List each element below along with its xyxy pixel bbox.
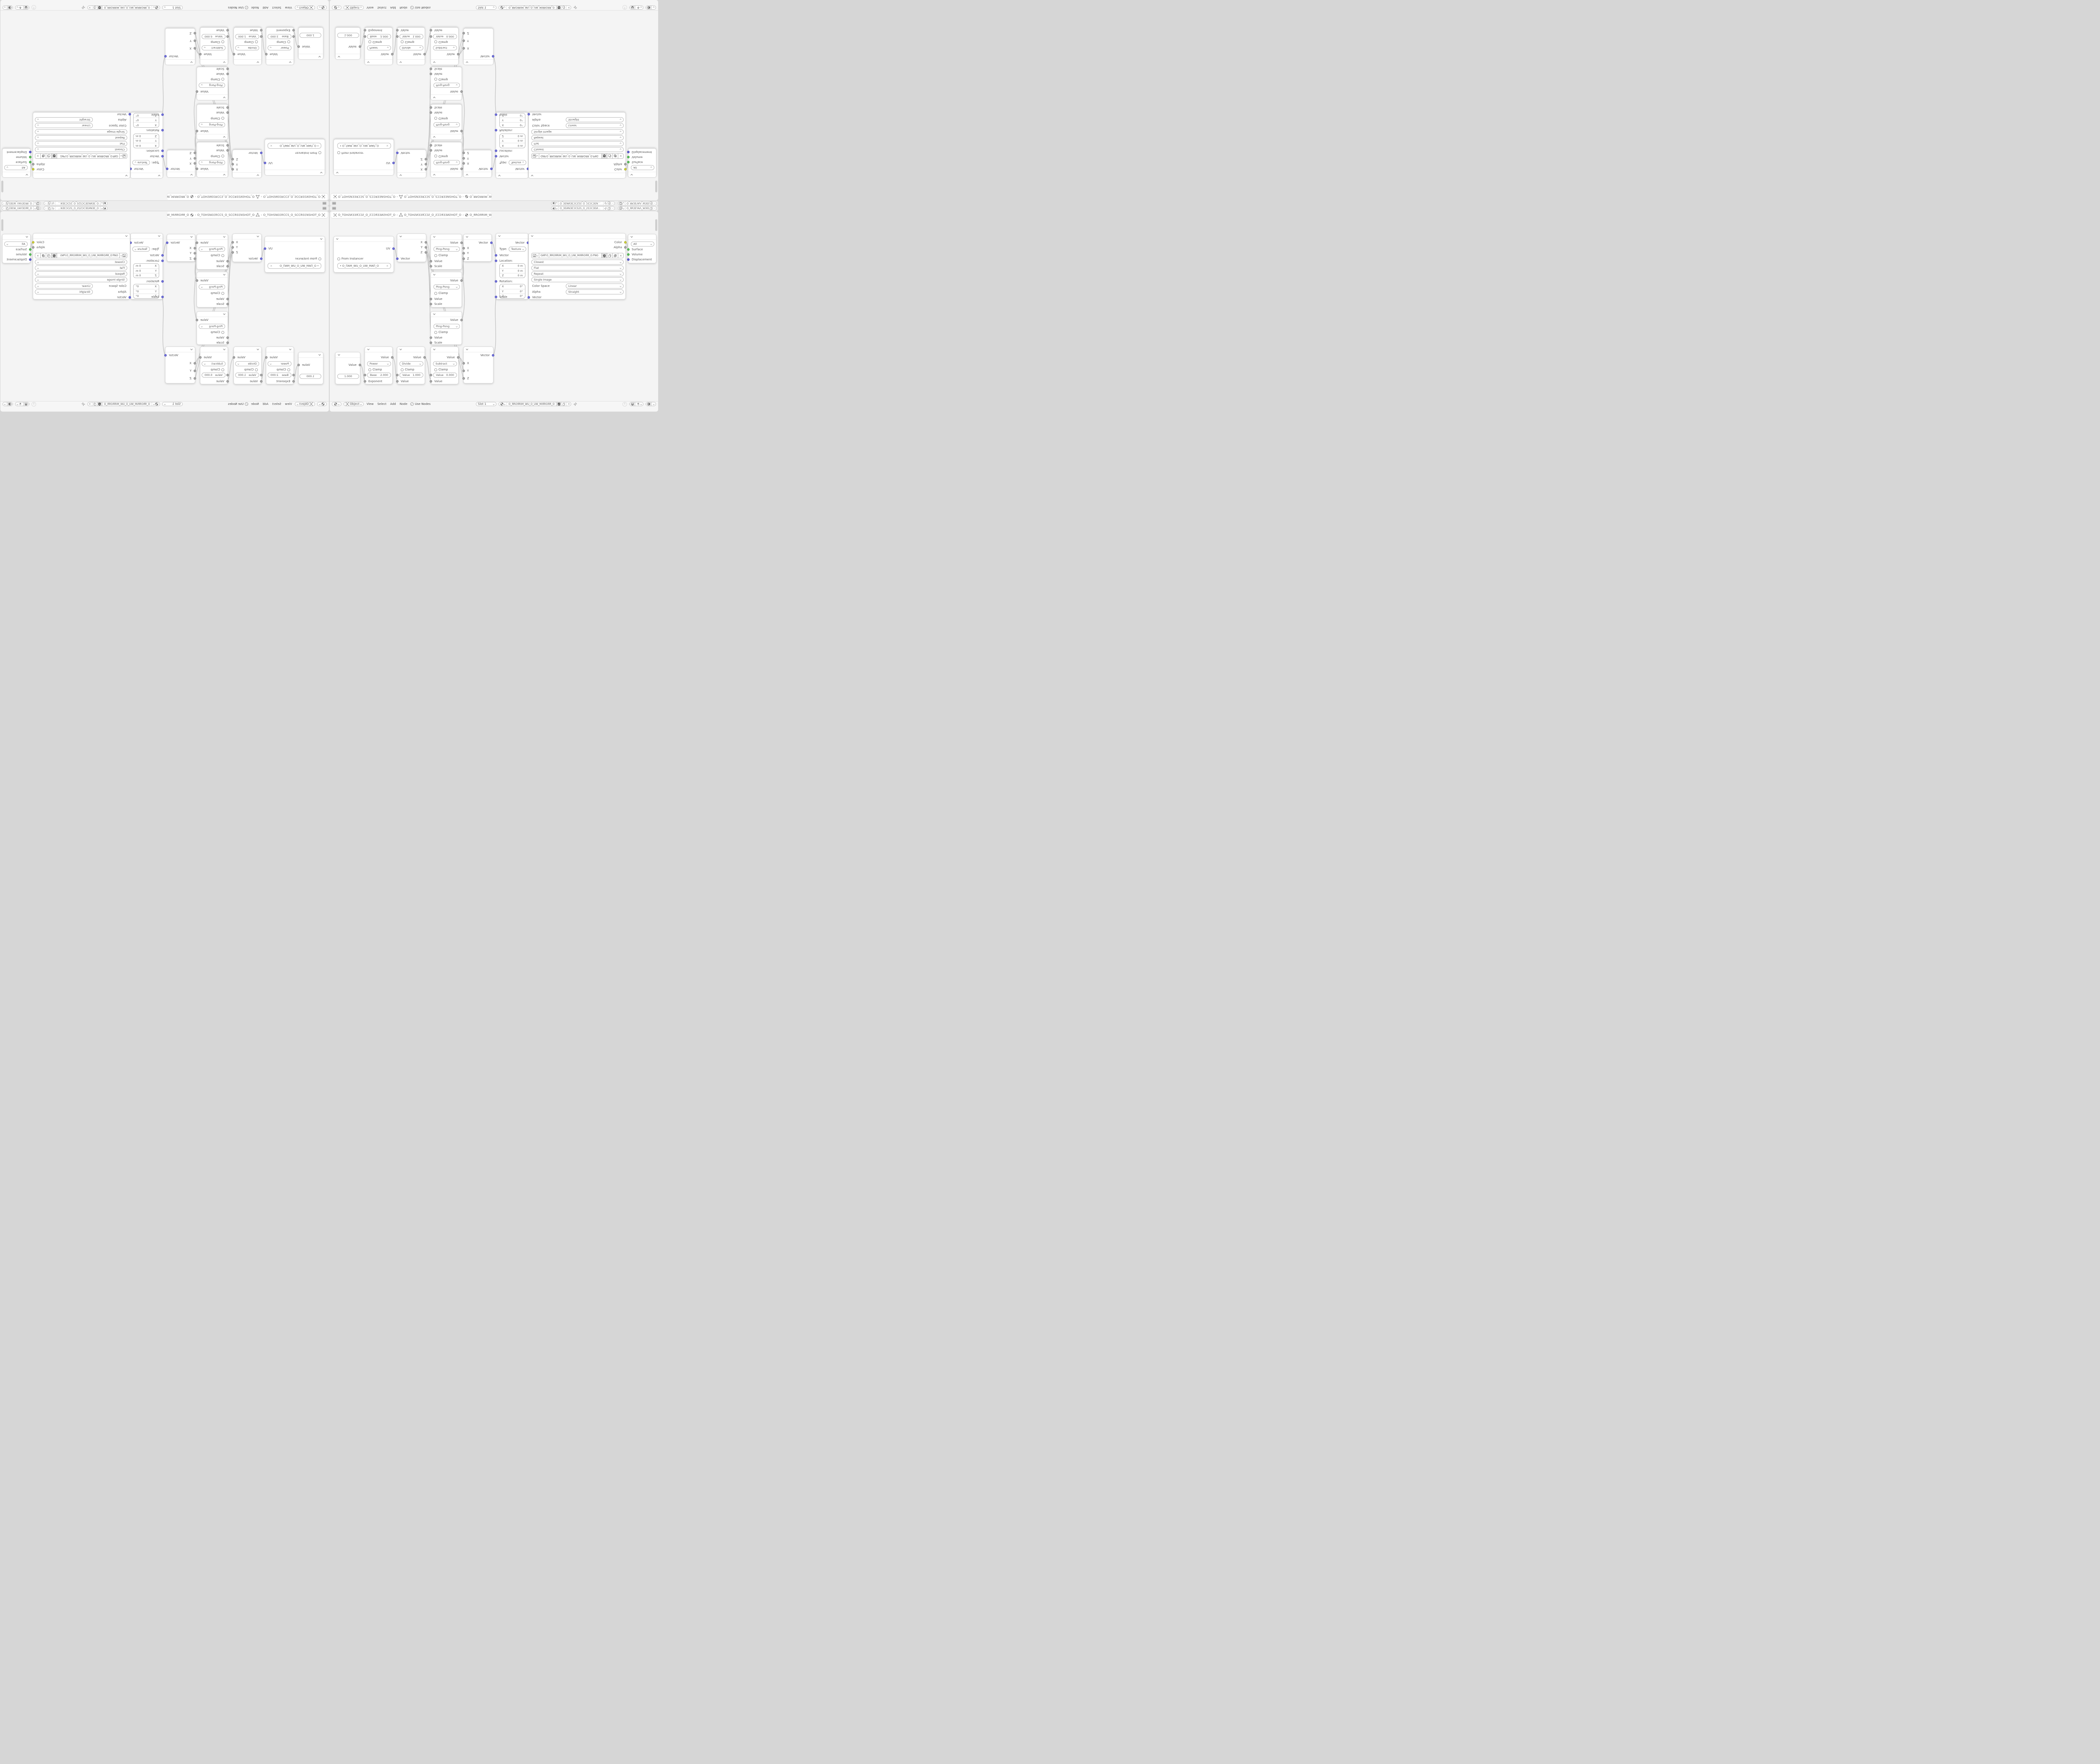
pin-icon[interactable] [603, 202, 607, 205]
vector-input-socket[interactable] [396, 257, 399, 260]
uv-output-socket[interactable] [264, 162, 266, 164]
y-input-socket[interactable] [194, 157, 196, 160]
clamp-checkbox[interactable] [221, 41, 224, 44]
value-output-socket[interactable] [460, 130, 463, 132]
vector-output-socket[interactable] [166, 241, 168, 244]
up-arrow-ghost-button[interactable]: ↑ [31, 402, 36, 407]
breadcrumb-object[interactable]: O_TOHƧИЗЗЯƆƆƧ_O_ƧƆƆЯЗЗИƧHOT_O [197, 195, 255, 199]
collapse-chevron-icon[interactable] [158, 234, 160, 237]
collapse-chevron-icon[interactable] [630, 235, 633, 238]
z-output-socket[interactable] [425, 158, 427, 160]
collapse-chevron-icon[interactable] [367, 61, 370, 64]
x-input-socket[interactable] [462, 362, 465, 365]
scale-input-socket[interactable] [226, 303, 229, 305]
breadcrumb-object[interactable]: O_TOHƧИЗЗЯƆƆƧ_O_ƧƆƆЯЗЗИƧHOT_O [404, 195, 461, 199]
value-output-socket[interactable] [196, 319, 198, 321]
collapse-chevron-icon[interactable] [257, 174, 259, 177]
vector-input-socket[interactable] [161, 155, 164, 157]
value-input-socket[interactable] [430, 298, 432, 300]
uv-map-node[interactable]: UV From Instancer • O_ПAM_WU_O_UW_MAП_O … [333, 236, 394, 273]
math-node-ping-pong-2[interactable]: Value Ping-Pong Clamp Value Scale [430, 104, 462, 140]
editor-type-button[interactable] [332, 5, 341, 10]
value-output-socket[interactable] [196, 90, 198, 93]
pin-icon[interactable] [52, 207, 55, 210]
x-output-socket[interactable] [425, 241, 427, 244]
collapse-chevron-icon[interactable] [190, 61, 193, 64]
overlays-icon[interactable] [646, 6, 651, 9]
base-field[interactable]: Base2.000 [268, 373, 291, 378]
overlays-dropdown[interactable] [651, 402, 656, 406]
unlink-x-icon[interactable]: × [88, 402, 92, 406]
output-target-dropdown[interactable]: All [631, 241, 654, 247]
pack-icon[interactable] [40, 253, 46, 258]
collapse-chevron-icon[interactable] [338, 56, 340, 58]
projection-dropdown[interactable]: Flat [531, 141, 624, 146]
breadcrumb-material[interactable]: O_ЯROЯRIM_WU_O_UW_MIЯROЯR_O [470, 213, 491, 217]
collapse-chevron-icon[interactable] [531, 234, 533, 237]
breadcrumb-material[interactable]: O_ЯROЯRIM_WU_O_UW_MIЯROЯR_O [470, 195, 491, 199]
menu-hamburger-icon[interactable] [332, 202, 336, 205]
magnet-icon[interactable] [630, 6, 635, 9]
value-output-socket[interactable] [196, 130, 198, 132]
operation-dropdown[interactable]: Power [367, 45, 391, 50]
collapse-chevron-icon[interactable] [289, 61, 291, 64]
value-field[interactable]: Value1.000 [399, 34, 423, 39]
use-nodes-checkbox[interactable]: ✓ Use Nodes [228, 402, 248, 406]
separate-xyz-node[interactable]: X Y Z Vector [397, 150, 426, 178]
base-input-socket[interactable] [292, 374, 295, 376]
vector-output-socket[interactable] [492, 354, 494, 357]
value-output-socket[interactable] [460, 319, 463, 321]
copy-icon[interactable] [48, 202, 52, 205]
material-browse-icon[interactable] [499, 402, 507, 406]
shader-context-dropdown[interactable]: Object [344, 5, 364, 10]
collapse-chevron-icon[interactable] [223, 235, 226, 238]
value-output-socket[interactable] [460, 241, 463, 244]
value-output-socket[interactable] [196, 168, 198, 170]
copy-icon[interactable] [649, 207, 653, 210]
scale-input-socket[interactable] [226, 341, 229, 344]
projection-dropdown[interactable]: Flat [531, 265, 624, 270]
x-input-socket[interactable] [194, 247, 196, 249]
alpha-mode-dropdown[interactable]: Straight [566, 289, 624, 294]
collapse-chevron-icon[interactable] [318, 56, 321, 58]
image-texture-node[interactable]: Color Alpha GИP.O_ЯROЯRIM_WU_O_UW_MIЯROЯ… [33, 233, 130, 299]
breadcrumb-scene[interactable]: O_TOHƧИЗЗЯƆƆƧ_O_ƧƆƆЯЗЗИƧHOT_O [338, 195, 395, 199]
displacement-input-socket[interactable] [29, 258, 31, 261]
id-selector-b[interactable]: O_ЯRЗEYAΛ_WЗEIW_O_WIЗEW_ΛAYЗERЯ_O × [2, 206, 41, 210]
clamp-checkbox[interactable] [434, 155, 437, 158]
base-input-socket[interactable] [364, 35, 366, 38]
uv-output-socket[interactable] [264, 247, 266, 250]
material-browse-icon[interactable] [152, 6, 160, 9]
combine-xyz-node-bottom[interactable]: Vector X Y Z [165, 346, 195, 383]
math-node-ping-pong-3[interactable]: Value Ping-Pong Clamp Value Scale [430, 67, 462, 100]
output-target-dropdown[interactable]: All [631, 165, 654, 170]
base-input-socket[interactable] [292, 35, 295, 38]
source-dropdown[interactable]: Single Image [35, 129, 127, 134]
clamp-checkbox[interactable] [434, 254, 437, 257]
unlink-x-icon[interactable]: × [44, 202, 48, 205]
id-selector-a[interactable]: O_ЗEИNЗEƆCS2S_O_2SƆCЗEИ… × [551, 201, 615, 205]
collapse-chevron-icon[interactable] [223, 348, 226, 350]
breadcrumb-scene[interactable]: O_TOHƧИЗЗЯƆƆƧ_O_ƧƆƆЯЗЗИƧHOT_O [263, 195, 320, 199]
clamp-checkbox[interactable] [368, 368, 371, 371]
material-output-node[interactable]: All Surface Volume Displacement [2, 148, 31, 178]
overlays-icon[interactable] [7, 6, 13, 9]
z-input-socket[interactable] [194, 32, 196, 34]
up-arrow-ghost-button[interactable]: ↑ [622, 5, 627, 10]
value-output-socket[interactable] [359, 45, 361, 48]
value-input-socket[interactable] [226, 111, 229, 114]
math-node-subtract[interactable]: Value Subtract Clamp Value0.000 Value [430, 27, 459, 65]
collapse-chevron-icon[interactable] [498, 175, 501, 177]
snap-type-dropdown[interactable] [16, 402, 24, 406]
value-output-socket[interactable] [460, 90, 463, 93]
value-input-socket[interactable] [226, 73, 229, 75]
mapping-type-dropdown[interactable]: Texture [509, 247, 526, 252]
color-space-dropdown[interactable]: Linear [566, 283, 624, 289]
math-node-subtract[interactable]: Value Subtract Clamp Value0.000 Value [200, 27, 228, 65]
alpha-output-socket[interactable] [624, 163, 627, 165]
value2-input-socket[interactable] [260, 29, 262, 31]
value-output-socket[interactable] [423, 53, 426, 55]
material-name[interactable]: O_ЯROЯRIM_WU_O_UW_MIЯROЯR_O [102, 6, 152, 9]
pin-icon[interactable] [603, 207, 607, 210]
operation-dropdown[interactable]: Subtract [433, 45, 457, 50]
vector-output-socket[interactable] [492, 55, 494, 58]
collapse-chevron-icon[interactable] [223, 61, 226, 64]
y-output-socket[interactable] [425, 246, 427, 249]
menu-view[interactable]: View [284, 6, 293, 9]
unlink-x-icon[interactable]: × [88, 6, 92, 9]
uv-map-node[interactable]: UV From Instancer • O_ПAM_WU_O_UW_MAП_O … [333, 139, 394, 176]
value2-input-socket[interactable] [226, 29, 229, 31]
value-field[interactable]: 1.000 [337, 374, 359, 379]
math-node-power[interactable]: Value Power Clamp Base2.000 Exponent [365, 346, 393, 384]
z-input-socket[interactable] [194, 377, 196, 380]
unlink-x-icon[interactable]: × [618, 253, 624, 258]
math-node-ping-pong-3[interactable]: Value Ping-Pong Clamp Value Scale [197, 311, 228, 345]
operation-dropdown[interactable]: Ping-Pong [199, 160, 225, 165]
id-selector-b[interactable]: O_ЯRЗEYAΛ_WЗEIW_O_WIЗEW_ΛAYЗERЯ_O × [2, 201, 41, 205]
alpha-mode-dropdown[interactable]: Straight [35, 289, 93, 294]
image-filename[interactable]: GИP.O_ЯROЯRIM_WU_O_UW_MIЯROЯR_O.PNG [57, 153, 119, 159]
unlink-x-icon[interactable]: × [2, 207, 6, 210]
clamp-checkbox[interactable] [221, 368, 224, 371]
operation-dropdown[interactable]: Ping-Pong [433, 83, 460, 88]
y-input-socket[interactable] [194, 252, 196, 255]
clamp-checkbox[interactable] [221, 155, 224, 158]
value-field[interactable]: Value1.000 [235, 34, 259, 39]
rotation-input-socket[interactable] [161, 129, 164, 131]
volume-input-socket[interactable] [29, 253, 31, 256]
volume-input-socket[interactable] [627, 156, 630, 158]
menu-node[interactable]: Node [250, 6, 260, 9]
scale-input-socket[interactable] [495, 296, 497, 298]
unlink-x-icon[interactable]: × [566, 6, 571, 9]
color-output-socket[interactable] [32, 168, 34, 171]
material-selector[interactable]: O_ЯROЯRIM_WU_O_UW_MIЯROЯR_O × [499, 402, 572, 406]
value-field[interactable]: Value1.000 [399, 373, 423, 378]
scale-input-socket[interactable] [226, 265, 229, 268]
unlink-x-icon[interactable]: × [566, 402, 571, 406]
from-instancer-checkbox[interactable] [337, 152, 340, 155]
pack-icon[interactable] [613, 153, 618, 159]
value-output-socket[interactable] [297, 364, 300, 366]
math-node-divide[interactable]: Value Divide Clamp Value1.000 Value [397, 27, 425, 65]
value-node[interactable]: Value 1.000 [335, 27, 360, 60]
material-name[interactable]: O_ЯROЯRIM_WU_O_UW_MIЯROЯR_O [507, 6, 556, 9]
menu-node[interactable]: Node [399, 6, 408, 9]
collapse-chevron-icon[interactable] [223, 97, 226, 99]
value-input-socket[interactable] [430, 336, 432, 339]
value-output-socket[interactable] [457, 356, 459, 359]
x-input-socket[interactable] [462, 247, 465, 249]
collapse-chevron-icon[interactable] [158, 175, 160, 177]
pin-icon[interactable] [81, 402, 85, 406]
id-selector-a-value[interactable]: O_ЗEИNЗEƆCS2S_O_2SƆCЗEИ… [55, 207, 100, 210]
extension-dropdown[interactable]: Repeat [531, 135, 624, 140]
interpolation-dropdown[interactable]: Closest [531, 147, 624, 152]
clamp-checkbox[interactable] [434, 292, 437, 295]
operation-dropdown[interactable]: Subtract [202, 45, 226, 50]
collapse-chevron-icon[interactable] [466, 235, 468, 238]
id-selector-a[interactable]: O_ЗEИNЗEƆCS2S_O_2SƆCЗEИ… × [44, 201, 108, 205]
location-fields[interactable]: X0 m Y0 m Z0 m [133, 263, 159, 278]
vector-output-socket[interactable] [164, 55, 167, 58]
uv-output-socket[interactable] [392, 247, 395, 250]
value-field[interactable]: 1.000 [337, 33, 359, 38]
image-datablock-selector[interactable]: GИP.O_ЯROЯRIM_WU_O_UW_MIЯROЯR_O.PNG × [531, 253, 624, 258]
x-input-socket[interactable] [194, 162, 196, 165]
math-node-power[interactable]: Value Power Clamp Base2.000 Exponent [365, 27, 393, 65]
image-browse-icon[interactable] [119, 153, 127, 159]
id-selector-a-value[interactable]: O_ЗEИNЗEƆCS2S_O_2SƆCЗEИ… [559, 202, 603, 205]
snap-controls[interactable] [15, 402, 29, 406]
alpha-mode-dropdown[interactable]: Straight [35, 117, 93, 122]
combine-xyz-node-bottom[interactable]: Vector X Y Z [165, 28, 195, 65]
extension-dropdown[interactable]: Repeat [35, 135, 127, 140]
y-output-socket[interactable] [231, 246, 234, 249]
clear-x-icon[interactable]: × [386, 144, 388, 147]
value-output-socket[interactable] [359, 364, 361, 366]
clear-x-icon[interactable]: × [270, 144, 272, 147]
output-target-dropdown[interactable]: All [4, 165, 28, 170]
id-selector-a-value[interactable]: O_ЗEИNЗEƆCS2S_O_2SƆCЗEИ… [55, 202, 100, 205]
unlink-x-icon[interactable]: × [611, 207, 614, 210]
collapse-chevron-icon[interactable] [125, 175, 128, 177]
volume-input-socket[interactable] [29, 156, 31, 158]
scale-input-socket[interactable] [430, 144, 432, 147]
breadcrumb-material[interactable]: O_ЯROЯRIM_WU_O_UW_MIЯROЯR_O [167, 195, 189, 199]
value-field[interactable]: Value0.000 [202, 373, 226, 378]
value1-input-socket[interactable] [430, 35, 432, 38]
operation-dropdown[interactable]: Ping-Pong [199, 247, 225, 252]
collapse-chevron-icon[interactable] [289, 348, 291, 350]
snap-controls[interactable] [15, 5, 29, 10]
displacement-input-socket[interactable] [627, 258, 630, 261]
operation-dropdown[interactable]: Divide [235, 361, 259, 366]
value-input-socket[interactable] [430, 111, 432, 114]
math-node-power[interactable]: Value Power Clamp Base2.000 Exponent [266, 27, 294, 65]
x-input-socket[interactable] [194, 362, 196, 365]
collapse-chevron-icon[interactable] [433, 312, 436, 315]
collapse-chevron-icon[interactable] [433, 174, 436, 176]
editor-type-button[interactable] [317, 402, 327, 406]
clamp-checkbox[interactable] [221, 254, 224, 257]
operation-dropdown[interactable]: Power [367, 361, 391, 366]
combine-xyz-node-bottom[interactable]: Vector X Y Z [463, 346, 493, 383]
math-node-ping-pong-3[interactable]: Value Ping-Pong Clamp Value Scale [197, 67, 228, 100]
value-field[interactable]: Value0.000 [433, 34, 457, 39]
operation-dropdown[interactable]: Divide [399, 45, 423, 50]
menu-node[interactable]: Node [399, 402, 408, 406]
clamp-checkbox[interactable] [368, 41, 371, 44]
up-arrow-ghost-button[interactable]: ↑ [31, 5, 36, 10]
alpha-mode-dropdown[interactable]: Straight [566, 117, 624, 122]
up-arrow-ghost-button[interactable]: ↑ [622, 402, 627, 407]
overlays-controls[interactable] [3, 5, 13, 10]
id-selector-b[interactable]: O_ЯRЗEYAΛ_WЗEIW_O_WIЗEW_ΛAYЗERЯ_O × [618, 201, 657, 205]
vector-input-socket[interactable] [528, 113, 530, 115]
menu-add[interactable]: Add [389, 6, 397, 9]
clamp-checkbox[interactable] [221, 331, 224, 334]
copy-icon[interactable] [649, 202, 653, 205]
use-nodes-checkbox[interactable]: ✓ Use Nodes [228, 6, 248, 9]
operation-dropdown[interactable]: Divide [399, 361, 423, 366]
location-fields[interactable]: X0 m Y0 m Z0 m [133, 134, 159, 148]
value-output-socket[interactable] [265, 53, 268, 55]
pack-icon[interactable] [613, 253, 618, 258]
clamp-checkbox[interactable] [434, 117, 437, 120]
collapse-chevron-icon[interactable] [466, 61, 468, 64]
clamp-checkbox[interactable] [401, 368, 404, 371]
clamp-checkbox[interactable] [434, 41, 437, 44]
from-instancer-checkbox[interactable] [337, 257, 340, 260]
collapse-chevron-icon[interactable] [399, 61, 402, 64]
value-input-socket[interactable] [226, 336, 229, 339]
y-input-socket[interactable] [194, 370, 196, 372]
color-space-dropdown[interactable]: Linear [35, 283, 93, 289]
image-browse-icon[interactable] [531, 153, 539, 159]
operation-dropdown[interactable]: Ping-Pong [433, 284, 460, 289]
vector-input-socket[interactable] [129, 296, 131, 299]
magnet-icon[interactable] [630, 402, 635, 406]
source-dropdown[interactable]: Single Image [35, 277, 127, 282]
value-output-socket[interactable] [196, 241, 198, 244]
collapse-chevron-icon[interactable] [466, 174, 468, 176]
editor-type-button[interactable] [332, 402, 341, 406]
collapse-chevron-icon[interactable] [338, 353, 340, 356]
mapping-node[interactable]: Vector Type: Texture Vector Location: X0… [130, 233, 163, 299]
value2-input-socket[interactable] [396, 380, 399, 383]
operation-dropdown[interactable]: Power [268, 45, 291, 50]
vector-input-socket[interactable] [495, 155, 497, 157]
exponent-input-socket[interactable] [364, 380, 366, 383]
location-input-socket[interactable] [161, 150, 164, 152]
rotation-input-socket[interactable] [161, 280, 164, 283]
collapse-chevron-icon[interactable] [223, 174, 226, 176]
z-input-socket[interactable] [462, 32, 465, 34]
node-header[interactable] [334, 170, 394, 175]
snap-type-dropdown[interactable] [635, 402, 643, 406]
vector-input-socket[interactable] [396, 152, 399, 154]
snap-controls[interactable] [629, 402, 643, 406]
collapse-chevron-icon[interactable] [190, 174, 193, 176]
breadcrumb-object[interactable]: O_TOHƧИЗЗЯƆƆƧ_O_ƧƆƆЯЗЗИƧHOT_O [404, 213, 461, 217]
value1-input-socket[interactable] [226, 35, 229, 38]
shader-context-dropdown[interactable]: Object [295, 5, 315, 10]
unlink-x-icon[interactable]: × [618, 153, 624, 159]
value-output-socket[interactable] [265, 356, 268, 359]
x-output-socket[interactable] [425, 168, 427, 171]
exponent-input-socket[interactable] [292, 380, 295, 383]
z-output-socket[interactable] [425, 251, 427, 254]
math-node-ping-pong-1[interactable]: Value Ping-Pong Clamp Value Scale [197, 234, 228, 270]
operation-dropdown[interactable]: Subtract [433, 361, 457, 366]
separate-xyz-node[interactable]: X Y Z Vector [232, 150, 262, 178]
value-field[interactable]: Value0.000 [202, 34, 226, 39]
value-input-socket[interactable] [430, 73, 432, 75]
operation-dropdown[interactable]: Ping-Pong [199, 83, 225, 88]
source-dropdown[interactable]: Single Image [531, 129, 624, 134]
math-node-subtract[interactable]: Value Subtract Clamp Value0.000 Value [200, 346, 228, 384]
operation-dropdown[interactable]: Subtract [202, 361, 226, 366]
menu-add[interactable]: Add [262, 6, 269, 9]
scale-input-socket[interactable] [226, 68, 229, 70]
image-texture-node[interactable]: Color Alpha GИP.O_ЯROЯRIM_WU_O_UW_MIЯROЯ… [528, 233, 626, 299]
collapse-chevron-icon[interactable] [433, 97, 436, 99]
operation-dropdown[interactable]: Ping-Pong [433, 247, 460, 252]
collapse-chevron-icon[interactable] [223, 312, 226, 315]
operation-dropdown[interactable]: Ping-Pong [199, 284, 225, 289]
unlink-x-icon[interactable]: × [35, 153, 40, 159]
menu-hamburger-icon[interactable] [332, 207, 336, 210]
interpolation-dropdown[interactable]: Closest [35, 147, 127, 152]
collapse-chevron-icon[interactable] [433, 235, 436, 238]
breadcrumb-material[interactable]: O_ЯROЯRIM_WU_O_UW_MIЯROЯR_O [167, 213, 189, 217]
value-output-socket[interactable] [199, 356, 202, 359]
combine-xyz-node-top[interactable]: Vector X Y Z [167, 234, 195, 262]
unlink-x-icon[interactable]: × [653, 207, 656, 210]
vector-output-socket[interactable] [164, 354, 167, 357]
x-input-socket[interactable] [194, 47, 196, 50]
scale-input-socket[interactable] [430, 303, 432, 305]
value2-input-socket[interactable] [430, 380, 432, 383]
x-output-socket[interactable] [231, 168, 234, 171]
collapse-chevron-icon[interactable] [223, 273, 226, 276]
menu-view[interactable]: View [366, 6, 375, 9]
source-dropdown[interactable]: Single Image [531, 277, 624, 282]
image-datablock-selector[interactable]: GИP.O_ЯROЯRIM_WU_O_UW_MIЯROЯR_O.PNG × [35, 153, 127, 159]
clamp-checkbox[interactable] [255, 368, 258, 371]
material-slot-dropdown[interactable]: Slot 1 [162, 402, 183, 406]
z-input-socket[interactable] [462, 377, 465, 380]
id-selector-b[interactable]: O_ЯRЗEYAΛ_WЗEIW_O_WIЗEW_ΛAYЗERЯ_O × [618, 206, 657, 210]
vector-output-socket[interactable] [166, 168, 168, 170]
combine-xyz-node-top[interactable]: Vector X Y Z [167, 150, 195, 178]
pin-icon[interactable] [573, 6, 577, 10]
vector-input-socket[interactable] [260, 152, 262, 154]
uv-output-socket[interactable] [392, 162, 395, 164]
math-node-divide[interactable]: Value Divide Clamp Value1.000 Value [234, 346, 262, 384]
pin-icon[interactable] [81, 6, 85, 10]
interpolation-dropdown[interactable]: Closest [35, 260, 127, 265]
vector-input-socket[interactable] [495, 254, 497, 257]
math-node-divide[interactable]: Value Divide Clamp Value1.000 Value [234, 27, 262, 65]
breadcrumb-scene[interactable]: O_TOHƧИЗЗЯƆƆƧ_O_ƧƆƆЯЗЗИƧHOT_O [338, 213, 395, 217]
